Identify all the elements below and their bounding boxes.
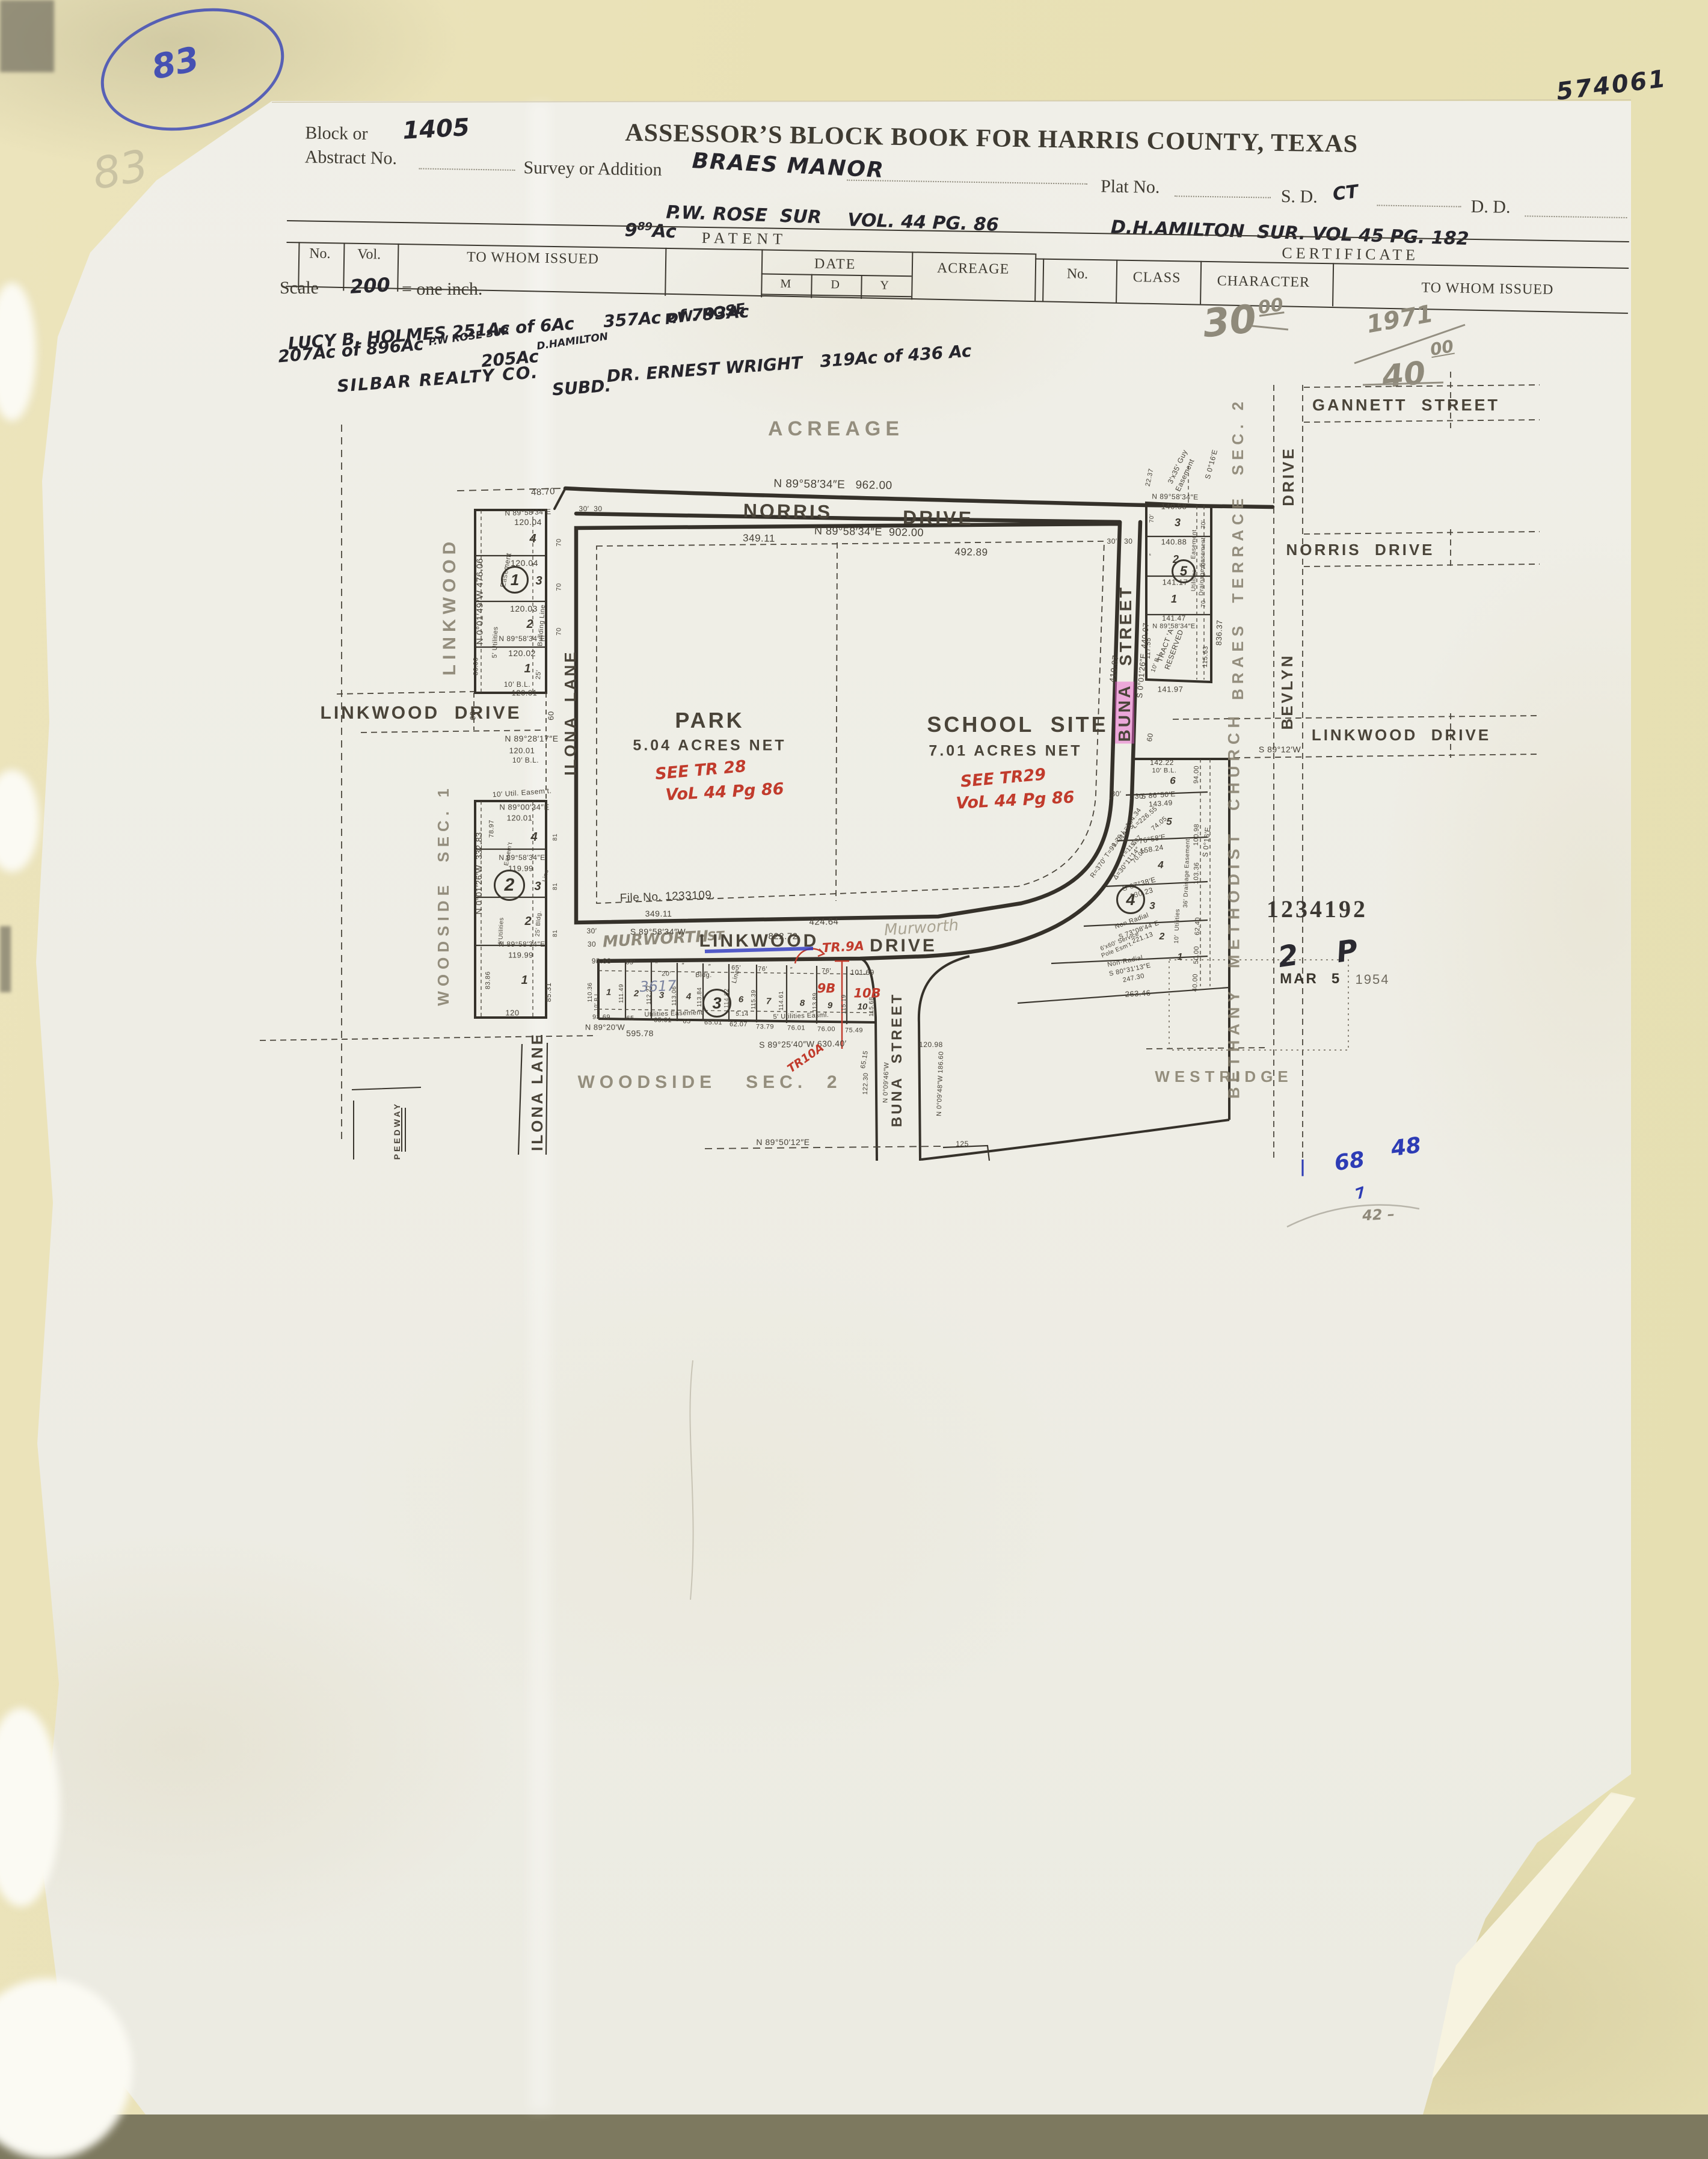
- map-label: 1: [524, 663, 530, 675]
- map-label: S 89°25′40″W 630.40′: [759, 1039, 847, 1049]
- map-label: 10′ Util. Easem’t.: [492, 787, 551, 799]
- map-label: 5.04 ACRES NET: [633, 739, 786, 754]
- map-label: 65.01: [704, 1020, 722, 1027]
- map-label: 120.98: [919, 1041, 943, 1048]
- map-label: 9B: [817, 983, 836, 995]
- map-label: 3: [535, 575, 542, 587]
- map-label: 81: [553, 883, 559, 890]
- map-label: 1: [606, 988, 611, 997]
- map-label: 158.24: [1139, 844, 1164, 855]
- map-label: 30: [588, 941, 596, 948]
- map-label: 1234192: [1267, 897, 1368, 921]
- map-label: 68: [1333, 1149, 1366, 1175]
- map-label: LINKWOOD: [441, 537, 459, 676]
- map-label: 65.15: [860, 1050, 870, 1069]
- map-label: 65: [683, 1019, 690, 1025]
- map-label: 30′: [1111, 790, 1121, 797]
- map-label: 492.89: [954, 547, 988, 557]
- map-label: Murworth: [883, 918, 959, 939]
- map-label: 424.64: [809, 917, 838, 927]
- map-label: ″: [790, 967, 793, 974]
- map-label: 10B: [853, 987, 880, 1000]
- map-label: 76′: [758, 966, 767, 973]
- map-label: 62.40: [1194, 917, 1202, 935]
- map-label: Drainage Easement: [1199, 537, 1206, 595]
- map-label: 120.01: [507, 814, 533, 822]
- map-label: N 89°20′W: [585, 1024, 625, 1031]
- map-label: BEVLYN: [1279, 653, 1295, 729]
- map-label: 86.06: [473, 657, 480, 675]
- map-label: 70: [556, 627, 563, 635]
- map-label: 2: [1276, 941, 1300, 972]
- map-label: BETHANY METHODIST CHURCH: [1226, 711, 1243, 1099]
- map-label: ILONA LANE: [562, 650, 578, 775]
- map-label: ″: [656, 962, 658, 968]
- map-label: 115.19: [841, 995, 847, 1015]
- map-label: 70: [1201, 600, 1207, 607]
- map-label: NORRIS DRIVE: [1286, 542, 1434, 557]
- map-label: BUNA STREET: [890, 992, 905, 1127]
- map-label: 5: [1166, 817, 1172, 827]
- map-label: 120.01: [509, 747, 535, 755]
- map-label-layer: ACREAGENORRISDRIVEGANNETT STREETNORRIS D…: [0, 0, 1708, 2114]
- map-label: P: [1335, 936, 1360, 967]
- map-label: 65′: [625, 960, 635, 966]
- map-label: ILONA LANE: [529, 1032, 545, 1151]
- map-label: 3: [534, 880, 541, 892]
- map-label: S 0°16′E: [1204, 449, 1219, 480]
- map-label: 85.31: [545, 983, 552, 1003]
- map-label: 3: [1149, 901, 1155, 911]
- map-label: 101.69: [850, 969, 874, 976]
- map-label: Bldg.: [695, 972, 712, 979]
- map-label: 10′ Utilities: [1174, 909, 1181, 944]
- map-label: 595.78: [626, 1029, 654, 1037]
- map-label: 48.70: [531, 487, 556, 497]
- map-label: 111.49: [619, 984, 625, 1003]
- map-label: N 89°58′34″E 962.00: [773, 478, 892, 491]
- map-label: 22.37: [1144, 468, 1155, 487]
- map-label: LINKWOOD DRIVE: [321, 704, 522, 722]
- map-label: N 89°50′12″E: [756, 1138, 809, 1146]
- map-label: 83: [149, 43, 202, 85]
- map-label: 122.30: [862, 1072, 870, 1095]
- map-label: 76.00: [817, 1027, 835, 1033]
- map-label: 263.46: [1125, 989, 1150, 998]
- map-label: 73.79: [756, 1024, 774, 1031]
- map-label: Easement: [1191, 529, 1198, 559]
- map-label: 10′ B.L.: [1152, 768, 1177, 775]
- map-label: DRIVE: [903, 508, 974, 528]
- map-label: 10′ B.L.: [512, 757, 539, 764]
- block-number-circle: 5: [1172, 559, 1196, 583]
- map-label: 48: [1390, 1135, 1423, 1161]
- map-label: 115.68: [869, 997, 875, 1017]
- map-label: 2: [1160, 932, 1165, 942]
- map-label: 60: [469, 711, 477, 720]
- map-label: 113.89: [813, 993, 819, 1013]
- block-number-circle: 2: [494, 870, 525, 901]
- map-label: N 0°09′48″W 186.60: [936, 1051, 945, 1116]
- map-label: 2: [634, 989, 639, 998]
- map-label: 141.47: [1162, 615, 1186, 622]
- map-label: 62.07: [730, 1022, 748, 1028]
- map-label: VoL 44 Pg 86: [665, 781, 784, 803]
- map-label: 1954: [1356, 973, 1390, 986]
- map-label: NORRIS: [743, 501, 833, 522]
- map-label: N 0°01′26′W 332.83: [475, 832, 483, 914]
- map-label: 83: [90, 144, 152, 196]
- map-label: 94.00: [1193, 766, 1200, 784]
- map-label: N 0°01′49″W 476.06: [476, 558, 485, 645]
- map-label: 1: [521, 974, 527, 986]
- map-label: 247.30: [1122, 973, 1145, 984]
- map-label: 5: [1332, 972, 1341, 986]
- map-label: 574061: [1555, 67, 1668, 104]
- map-label: 70: [556, 583, 563, 591]
- map-label: 7.01 ACRES NET: [929, 744, 1082, 759]
- map-label: 115.39: [751, 990, 757, 1010]
- map-label: 65: [626, 1016, 634, 1022]
- map-label: 113.06: [672, 986, 678, 1006]
- map-label: VoL 44 Pg 86: [956, 789, 1075, 811]
- map-label: 5′ Utilities: [492, 626, 500, 658]
- map-label: ″: [682, 963, 684, 969]
- map-label: File No. 1233109.: [619, 889, 715, 904]
- map-label: PEEDWAY: [393, 1102, 401, 1160]
- map-label: 2: [526, 618, 533, 630]
- map-label: 836.37: [1215, 619, 1223, 645]
- map-label: 76′: [822, 968, 831, 975]
- map-label: 6: [1170, 776, 1175, 786]
- map-label: 60: [1146, 732, 1154, 742]
- map-label: N 89°00′34″E: [499, 803, 549, 811]
- map-label: 120.04: [514, 518, 542, 526]
- map-label: 140.88: [1161, 538, 1187, 546]
- map-label: 119.99: [508, 951, 533, 959]
- map-label: |: [1300, 1158, 1306, 1175]
- map-label: ″: [708, 964, 711, 971]
- map-label: 42 –: [1362, 1207, 1395, 1223]
- map-label: 93.69: [592, 1015, 610, 1021]
- map-label: 81: [553, 834, 559, 841]
- map-label: DRIVE: [1280, 446, 1296, 506]
- map-label: 120.02: [508, 649, 536, 657]
- map-label: 115.63: [1202, 646, 1209, 668]
- map-label: DRIVE: [870, 937, 937, 955]
- map-label: 349.11: [645, 909, 672, 918]
- map-label: 143.49: [1149, 799, 1173, 808]
- map-label: 20′: [662, 971, 671, 978]
- map-label: 40.00: [1192, 974, 1199, 992]
- map-label: SEE TR 28: [654, 758, 747, 782]
- block-number-circle: 3: [702, 989, 731, 1018]
- map-label: 5′Utilities: [498, 917, 505, 944]
- map-label: S 0°01′26″E 440.07: [1135, 622, 1150, 698]
- map-label: 5.14: [736, 1012, 748, 1018]
- map-label: 125: [956, 1140, 969, 1147]
- map-label: 30′ 30: [579, 505, 602, 512]
- map-label: 141.97: [1158, 686, 1184, 693]
- map-label: S 0°16′E: [1202, 826, 1211, 857]
- map-label: N 89°28′17″E: [505, 734, 558, 743]
- map-label: 117.55: [1145, 637, 1152, 659]
- map-label: LINKWOOD DRIVE: [1312, 727, 1491, 743]
- map-label: Utilities Easement: [644, 1010, 702, 1018]
- map-label: 1: [1171, 594, 1177, 604]
- map-label: 75.49: [845, 1028, 863, 1034]
- map-label: 2: [524, 915, 531, 927]
- map-label: PARK: [675, 710, 744, 731]
- map-label: 100.98: [1193, 823, 1200, 846]
- map-label: 4: [686, 992, 691, 1001]
- map-label: S 89°58′34″W: [630, 927, 686, 936]
- map-label: 76.01: [787, 1025, 805, 1032]
- map-label: 349.11: [743, 533, 775, 544]
- map-label: MAR: [1280, 972, 1318, 986]
- map-label: 36′ Drainage Easement: [1183, 839, 1191, 908]
- map-label: 93.68: [592, 957, 612, 965]
- scanned-assessor-page: { "page": { "corner_number": "574061", "…: [0, 0, 1708, 2114]
- map-label: 70: [556, 538, 563, 546]
- map-label: 112.27: [647, 985, 653, 1005]
- block-number-circle: 1: [501, 566, 529, 594]
- map-label: 3: [659, 991, 664, 1000]
- map-label: 5′ Utilities Easml.: [773, 1012, 829, 1021]
- map-label: 142.22: [1150, 759, 1174, 766]
- map-label: BUNA: [1115, 682, 1134, 744]
- map-label: 65.01: [654, 1018, 672, 1024]
- map-label: 120: [505, 1009, 519, 1017]
- map-label: N 89°58′34″E 902.00: [814, 525, 924, 538]
- map-label: 110.36: [588, 983, 594, 1003]
- map-label: 7: [766, 997, 771, 1006]
- map-label: TR.9A: [822, 940, 865, 955]
- map-label: 50.00: [1193, 946, 1200, 964]
- map-label: 7: [1353, 1185, 1368, 1202]
- map-label: 78.97: [489, 820, 496, 838]
- map-label: 140.58: [1161, 503, 1187, 511]
- map-label: 30′ 30: [1107, 538, 1133, 545]
- map-label: 822.72: [769, 932, 798, 941]
- map-label: 70′: [1149, 514, 1155, 523]
- map-label: SCHOOL SITE: [927, 714, 1108, 736]
- map-label: SEE TR29: [960, 766, 1046, 790]
- map-label: 6: [739, 995, 743, 1004]
- map-label: 120.01: [512, 689, 538, 697]
- map-label: 70′: [1201, 520, 1207, 529]
- map-label: N 89°58′34″E: [499, 941, 545, 948]
- map-label: WOODSIDE SEC. 1: [435, 784, 451, 1006]
- map-label: 25′ Bldg.: [535, 911, 543, 937]
- map-label: 30′: [586, 927, 597, 935]
- map-label: 120.03: [510, 604, 538, 613]
- block-number-circle: 4: [1116, 885, 1145, 914]
- map-label: WOODSIDE SEC. 2: [577, 1073, 841, 1092]
- map-label: ″: [1149, 553, 1155, 556]
- map-label: 4: [530, 831, 537, 843]
- map-label: STREET: [1117, 585, 1134, 666]
- map-label: N 89°58′34″E: [1152, 493, 1199, 500]
- map-label: 9: [828, 1001, 832, 1010]
- map-label: WESTRIDGE: [1155, 1069, 1292, 1084]
- map-label: 103.36: [1193, 862, 1200, 884]
- map-label: 4: [529, 533, 536, 545]
- map-label: 25′: [535, 670, 542, 680]
- map-label: 83.86: [485, 971, 492, 989]
- map-label: LINKWOOD: [699, 932, 819, 950]
- map-label: 1: [1178, 953, 1183, 962]
- map-label: 10: [858, 1003, 868, 1012]
- map-label: 3: [1175, 517, 1181, 528]
- map-label: 81: [553, 930, 559, 937]
- map-label: Line: [542, 869, 550, 882]
- map-label: S 89°12′W: [1259, 745, 1301, 754]
- map-label: N 89°58′34″E: [505, 508, 551, 517]
- map-label: 8: [800, 999, 805, 1008]
- map-label: 10′ B.L.: [594, 990, 600, 1011]
- map-label: 4: [1158, 860, 1163, 870]
- map-label: 410.07: [1108, 654, 1119, 683]
- map-label: BRAES TERRACE SEC. 2: [1230, 397, 1246, 700]
- map-label: 114.61: [779, 991, 785, 1011]
- map-label: 10′ B.L.: [504, 681, 530, 688]
- map-label: 60: [547, 711, 555, 720]
- map-label: ACREAGE: [768, 419, 904, 439]
- map-label: GANNETT STREET: [1312, 398, 1500, 414]
